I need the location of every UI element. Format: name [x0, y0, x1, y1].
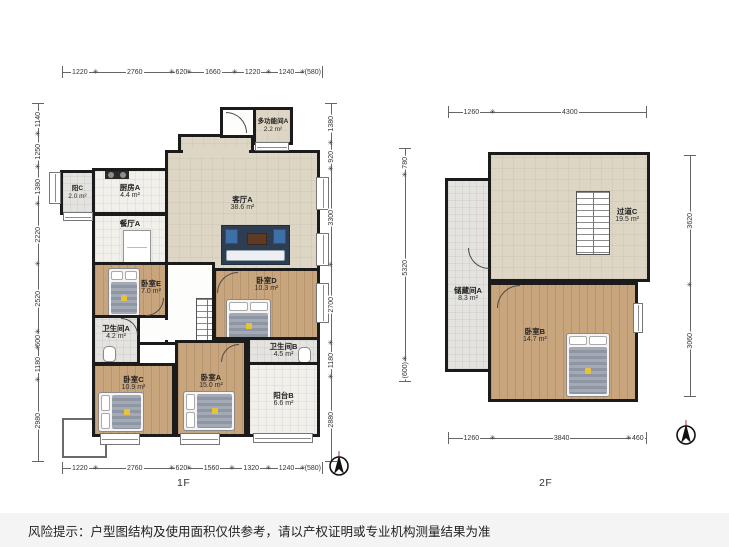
room-area: 2.2 m²: [264, 126, 282, 134]
dim-1f-right: 1380 920 3300 2700 1180 2880: [325, 103, 337, 462]
dim-segment: (600): [399, 360, 411, 381]
room-living-a: 客厅A38.6 m²: [165, 150, 320, 272]
dim-segment: 1180: [325, 344, 337, 378]
room-area: 15.0 m²: [199, 382, 223, 390]
dim-1f-bottom: 1220 2760 620 1560 1320 1240 (580): [62, 462, 323, 474]
dim-segment: 1260: [449, 432, 494, 444]
room-name: 餐厅A: [120, 219, 140, 228]
floor-join: [160, 320, 170, 340]
room-balcony-c: 阳C2.0 m²: [60, 170, 95, 215]
dim-2f-right: 3620 3060: [684, 155, 696, 397]
room-corridor-c: 过道C19.5 m²: [488, 152, 650, 282]
room-name: 阳C: [72, 185, 83, 193]
room-storage-a: 储藏间A8.3 m²: [445, 178, 491, 372]
room-name: 卫生间B: [270, 342, 298, 351]
room-name: 多功能间A: [258, 118, 289, 126]
dim-2f-bottom: 1260 3840 460: [448, 432, 647, 444]
room-area: 38.6 m²: [231, 204, 255, 212]
dim-segment: 1260: [449, 106, 494, 118]
dining-table-icon: [123, 230, 151, 264]
dim-segment: 1220: [63, 462, 97, 474]
dim-segment: 3300: [325, 170, 337, 265]
room-area: 4.5 m²: [274, 351, 294, 359]
dim-segment: 1240: [269, 462, 303, 474]
dim-segment: 1220: [63, 66, 97, 78]
room-name: 客厅A: [232, 195, 252, 204]
bed-icon: [566, 333, 610, 397]
dim-segment: 1220: [236, 66, 270, 78]
floorplan-canvas: 多功能间A2.2 m² 客厅A38.6 m² 阳C2.0 m² 厨房A4.4 m…: [0, 0, 729, 547]
dim-segment: 5320: [399, 176, 411, 360]
window-icon: [49, 172, 61, 204]
room-name: 卧室C: [123, 375, 143, 384]
room-name: 卧室A: [201, 373, 221, 382]
dim-segment: 2760: [97, 462, 173, 474]
room-name: 厨房A: [120, 183, 140, 192]
dim-segment: 1380: [32, 168, 44, 205]
room-area: 19.5 m²: [615, 216, 639, 224]
room-name: 过道C: [617, 207, 637, 216]
dim-segment: 1240: [269, 66, 303, 78]
toilet-icon: [298, 347, 311, 363]
dim-segment: 460: [630, 432, 646, 444]
room-area: 10.3 m²: [255, 285, 279, 293]
bed-icon: [98, 392, 144, 432]
dim-segment: 1660: [190, 66, 236, 78]
north-compass-icon: [674, 419, 698, 447]
window-icon: [180, 433, 220, 445]
room-name: 卧室B: [525, 327, 545, 336]
dim-segment: (580): [304, 66, 322, 78]
window-icon: [63, 212, 93, 221]
window-icon: [255, 142, 289, 151]
dim-segment: (580): [304, 462, 322, 474]
stove-icon: [105, 171, 129, 179]
window-icon: [253, 433, 313, 443]
room-area: 8.3 m²: [458, 295, 478, 303]
dim-segment: 3840: [494, 432, 630, 444]
room-area: 7.0 m²: [141, 288, 161, 296]
dim-segment: 1380: [325, 104, 337, 144]
dim-segment: 2700: [325, 266, 337, 344]
room-name: 卧室D: [256, 276, 276, 285]
room-multi-a: 多功能间A2.2 m²: [253, 107, 293, 145]
coffee-table-icon: [247, 233, 267, 245]
dim-segment: 4300: [494, 106, 646, 118]
floor-label-2f: 2F: [539, 477, 552, 489]
room-name: 阳台B: [273, 391, 293, 400]
window-icon: [100, 433, 140, 445]
dim-1f-top: 1220 2760 620 1660 1220 1240 (580): [62, 66, 323, 78]
floor-join: [183, 148, 249, 157]
room-area: 4.4 m²: [120, 192, 140, 200]
room-bed-c: 卧室C10.9 m²: [92, 363, 175, 437]
floor-label-1f: 1F: [177, 477, 190, 489]
disclaimer-text: 风险提示：户型图结构及使用面积仅供参考，请以产权证明或专业机构测量结果为准: [28, 521, 491, 540]
dim-2f-left: 780 5320 (600): [399, 148, 411, 382]
room-name: 卧室E: [141, 279, 161, 288]
dim-segment: 2980: [32, 381, 44, 461]
dim-segment: 2520: [32, 265, 44, 333]
dim-segment: 2220: [32, 205, 44, 265]
armchair-icon: [225, 229, 238, 244]
toilet-icon: [103, 346, 116, 362]
room-balcony-b: 阳台B6.6 m²: [247, 362, 320, 437]
dim-1f-left: 1140 1250 1380 2220 2520 600 1180 2980: [32, 103, 44, 462]
bed-icon: [108, 268, 140, 317]
room-name: 储藏间A: [454, 286, 482, 295]
room-dining-a: 餐厅A7.6 m²: [92, 213, 168, 265]
bed-icon: [226, 299, 271, 340]
armchair-icon: [273, 229, 286, 244]
dim-segment: 3060: [684, 286, 696, 396]
disclaimer-bar: 风险提示：户型图结构及使用面积仅供参考，请以产权证明或专业机构测量结果为准: [0, 513, 729, 547]
sofa-icon: [221, 225, 290, 265]
dim-segment: 3620: [684, 156, 696, 286]
room-kitchen-a: 厨房A4.4 m²: [92, 168, 168, 215]
room-hall-1f: [165, 262, 215, 345]
dim-segment: 1320: [233, 462, 269, 474]
couch-icon: [226, 250, 285, 261]
dim-segment: 2760: [97, 66, 173, 78]
dim-segment: 1560: [190, 462, 233, 474]
bed-icon: [183, 391, 235, 431]
north-compass-icon: [327, 450, 351, 478]
room-area: 6.6 m²: [274, 400, 294, 408]
dim-2f-top: 1260 4300: [448, 106, 647, 118]
room-area: 2.0 m²: [68, 193, 86, 201]
window-icon: [633, 303, 643, 333]
room-bath-b: 卫生间B4.5 m²: [247, 337, 320, 365]
stairs-icon: [576, 191, 610, 255]
dim-segment: 2880: [325, 378, 337, 461]
room-area: 14.7 m²: [523, 336, 547, 344]
